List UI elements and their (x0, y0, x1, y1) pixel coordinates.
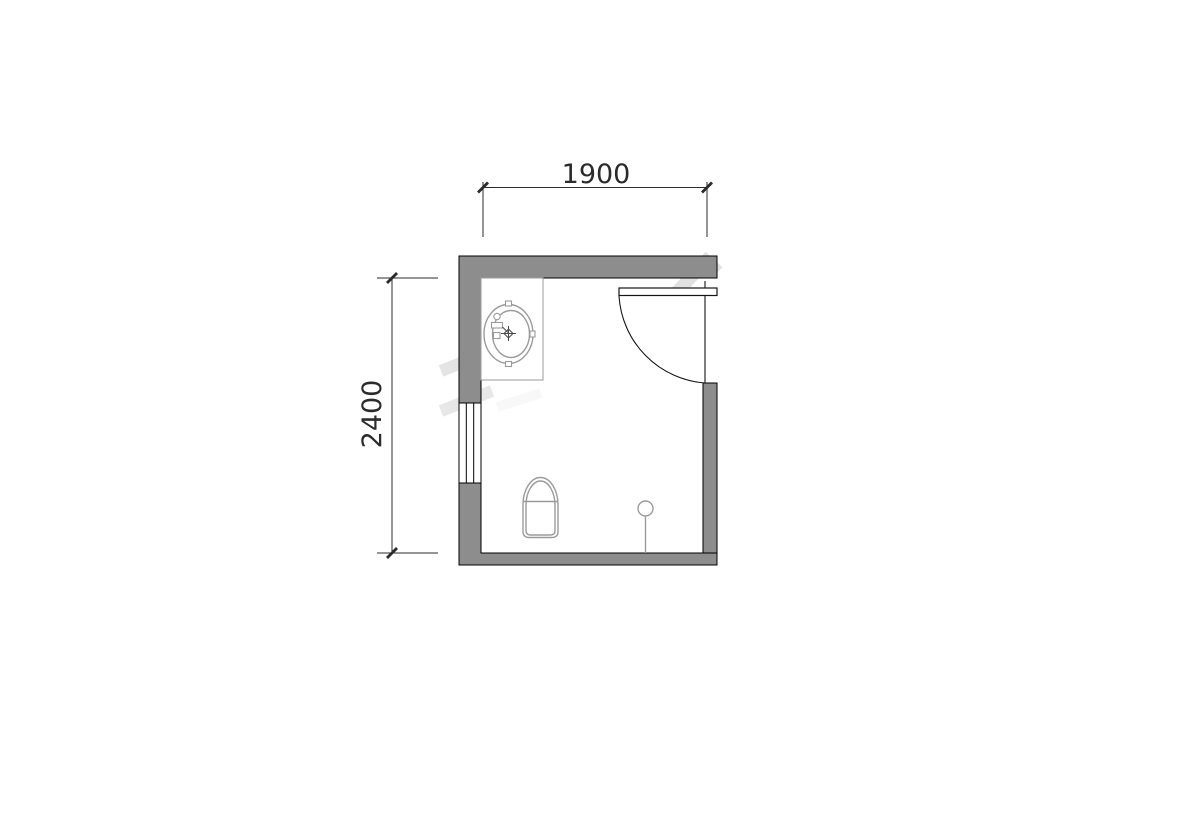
dimension-left-label: 2400 (357, 380, 388, 449)
dimension-top-extension-lines (483, 182, 707, 237)
sink-rim-tab-top (506, 301, 512, 306)
faucet-spout-icon (492, 323, 503, 329)
floor-drain (638, 501, 653, 553)
window (459, 403, 481, 483)
door-leaf (619, 288, 717, 296)
squat-toilet-outer (523, 478, 558, 538)
door (619, 281, 717, 383)
wall-bottom-and-left-lower (459, 483, 717, 565)
door-swing-arc (619, 296, 705, 383)
watermark-stroke-icon (497, 393, 541, 407)
window-frame (459, 403, 481, 483)
floor-plan-page: 1900 2400 (0, 0, 1198, 831)
dimension-top-label: 1900 (562, 159, 631, 190)
squat-toilet (523, 478, 558, 538)
vanity-sink (481, 278, 543, 380)
faucet-handle-icon (494, 333, 501, 339)
floor-drain-circle-icon (638, 501, 653, 516)
faucet-handle-icon (494, 313, 500, 319)
sink-rim-tab-bottom (506, 362, 512, 367)
dimension-top: 1900 (478, 159, 712, 237)
wall-right-lower (703, 383, 717, 553)
dimension-left: 2400 (357, 273, 438, 558)
squat-toilet-inner (526, 481, 555, 535)
floor-plan-drawing: 1900 2400 (0, 0, 1198, 831)
sink-rim-tab-right (530, 331, 535, 337)
